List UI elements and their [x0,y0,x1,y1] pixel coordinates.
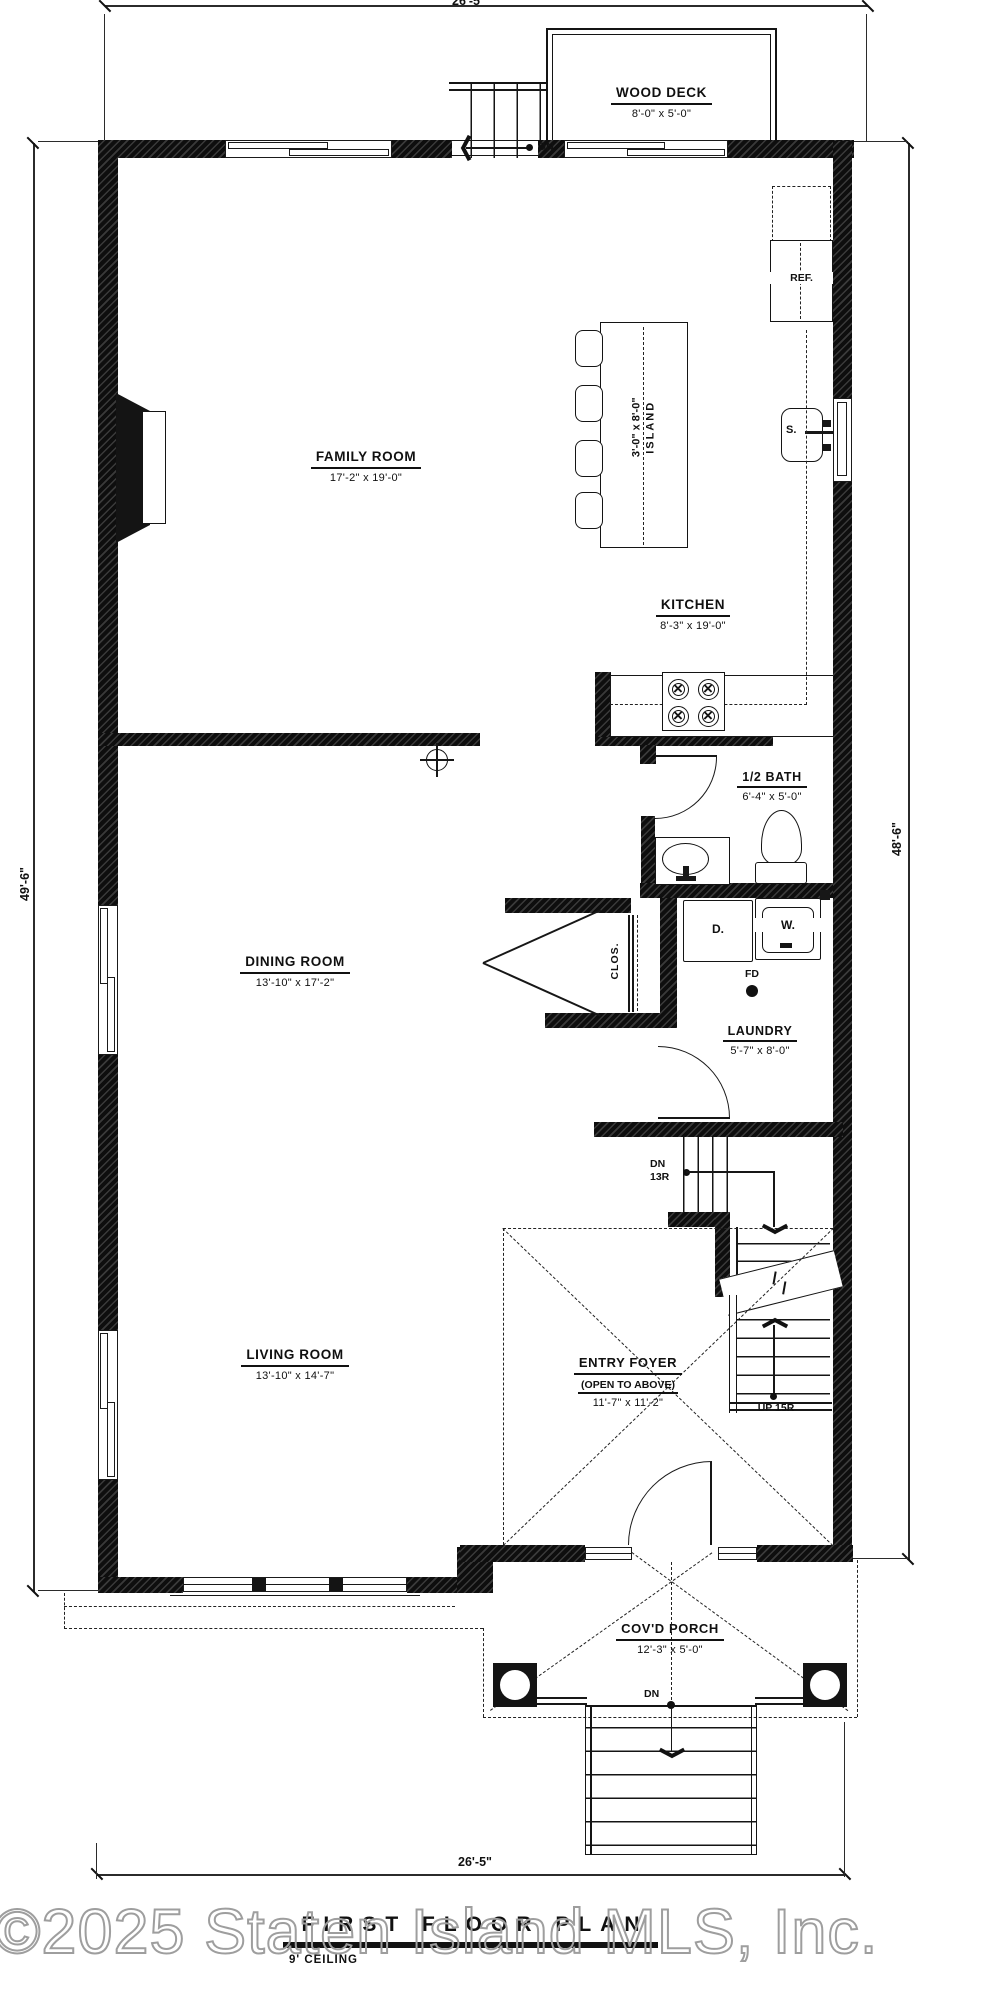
closet-label: CLOS. [605,931,623,991]
closet-door-leaf [483,962,601,1016]
wall-kitchen-south [595,737,773,746]
washer-valve-box [820,890,830,900]
ceiling-fan-icon-cross [436,743,438,777]
wall [98,140,118,905]
wall-bath-laundry-divider [640,883,833,898]
stair-guide-line [686,1171,775,1173]
wall-closet-top [505,898,631,913]
porch-column [803,1663,847,1707]
half-bath-label: 1/2 BATH 6'-4" x 5'-0" [697,768,847,804]
extension-line [38,1590,98,1591]
floor-plan-canvas: 26'-5" 49'-6" 48'-6" 26'-5" WOOD DECK 8'… [0,0,981,2000]
bath-faucet [676,876,696,881]
wall [460,1545,585,1562]
dim-label-bottom: 26'-5" [420,1855,530,1869]
window [585,1547,632,1560]
toilet-tank [755,862,807,884]
window [225,140,392,158]
floor-drain [746,985,758,997]
deck-dn-arrow-dot [526,144,533,151]
wall-family-dining-divider [98,733,480,746]
sink-faucet-knob [822,444,831,451]
wall [595,672,611,745]
porch-outline-dashed [483,1628,484,1717]
extension-line [866,14,867,141]
room-name: WOOD DECK [611,85,712,105]
deck-stair-line [449,89,546,91]
dim-label-right: 48'-6" [890,804,904,874]
island-label: 3'-0" x 8'-0" ISLAND [630,367,659,487]
window [564,140,728,158]
porch-overhang-dashed [64,1593,65,1629]
porch-dn-line [671,1707,673,1751]
wood-deck-label: WOOD DECK 8'-0" x 5'-0" [546,84,777,120]
burner [668,706,689,727]
closet-rod-dashed [637,915,638,1011]
sink-faucet [805,431,833,434]
porch-dn-label: DN [642,1688,661,1700]
sink-faucet-knob [822,420,831,427]
stairs-dn-label: DN13R [650,1158,669,1183]
burner [698,679,719,700]
wall-laundry-bottom [594,1122,843,1137]
window [718,1547,757,1560]
closet-shelf-line [632,915,634,1012]
porch-overhang-dashed [64,1606,455,1607]
porch-outline-dashed [857,1560,858,1717]
dim-label-top-clipped: 26'-5" [440,0,520,9]
porch-dn-arrowhead [659,1748,685,1758]
island-stool [575,385,603,422]
watermark: ©2025 Staten Island MLS, Inc. [0,1896,894,1968]
floor-drain-label: FD [736,968,768,980]
entry-foyer-label: ENTRY FOYER (OPEN TO ABOVE) 11'-7" x 11'… [528,1354,728,1410]
extension-line [844,1722,845,1877]
wall [392,140,452,158]
stove [662,672,725,731]
family-room-label: FAMILY ROOM 17'-2" x 19'-0" [266,448,466,484]
wall [757,1545,853,1562]
wall [641,816,655,885]
window-living-triple [183,1577,407,1592]
window [98,1330,118,1480]
dryer-label: D. [683,922,753,936]
room-dims: 8'-0" x 5'-0" [546,108,777,121]
cabinet-dashed [772,186,831,242]
sink-label: S. [786,424,796,436]
dining-room-label: DINING ROOM 13'-10" x 17'-2" [195,953,395,989]
wall [98,1577,183,1593]
island-stool [575,492,603,529]
dim-line-bottom [97,1874,845,1876]
porch-column [493,1663,537,1707]
basement-stair-treads [683,1137,729,1212]
fireplace-firebox [142,411,166,524]
refrigerator-label: REF. [770,272,833,284]
dim-line-left [33,143,35,1592]
upper-cabinet-dashed [806,330,807,705]
burner [668,679,689,700]
extension-line [96,1843,97,1879]
dim-line-right [908,143,910,1560]
wall [833,482,852,1560]
wall-closet-bottom [545,1013,677,1028]
closet-door-leaf [483,909,601,963]
deck-dn-arrow-line [466,147,530,149]
burner [698,706,719,727]
laundry-label: LAUNDRY 5'-7" x 8'-0" [684,1022,836,1058]
living-room-label: LIVING ROOM 13'-10" x 14'-7" [195,1346,395,1382]
extension-line [38,141,98,142]
kitchen-label: KITCHEN 8'-3" x 19'-0" [593,596,793,632]
toilet-bowl [761,810,802,866]
window [98,905,118,1055]
island-stool [575,330,603,367]
wall [833,141,852,398]
washer-label: W. [755,918,821,932]
extension-line [853,141,908,142]
wall [98,1055,118,1330]
covered-porch-label: COV'D PORCH 12'-3" x 5'-0" [570,1620,770,1657]
window-sill-line [170,1595,420,1596]
deck-dn-arrowhead [461,135,471,161]
extension-line [104,14,105,140]
dim-label-left: 49'-6" [18,849,32,919]
extension-line [853,1558,908,1559]
island-stool [575,440,603,477]
deck-dn-label: DN [538,141,554,153]
wall [640,745,656,764]
closet-shelf-line [628,915,630,1012]
window-kitchen-sink [833,398,852,482]
wall-closet-right [660,898,677,1028]
porch-overhang-dashed [64,1628,483,1629]
wall [407,1577,460,1593]
stair-guide-line [773,1171,775,1227]
